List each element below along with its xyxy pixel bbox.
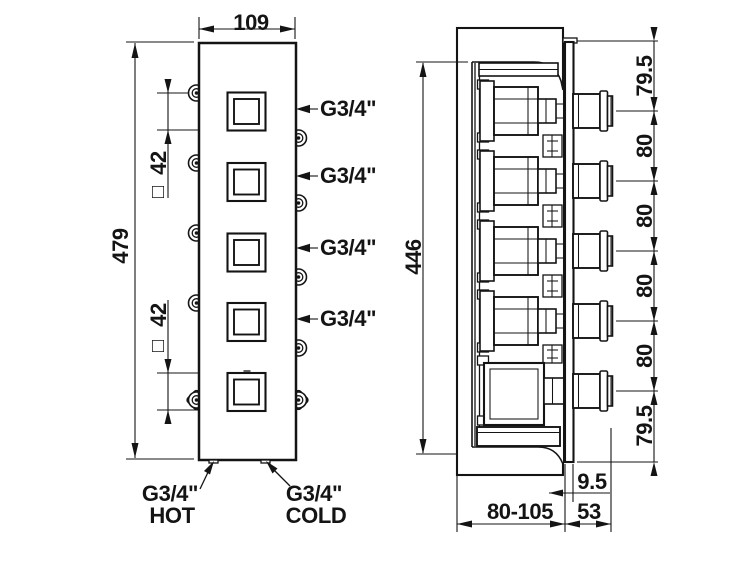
check-valve: [543, 135, 562, 157]
control-button: [228, 234, 266, 272]
side-height-label: 446: [401, 239, 426, 275]
front-height-label: 479: [108, 228, 133, 264]
plate-gap-label: 9.5: [577, 469, 607, 494]
spacing-label-3: 80: [632, 204, 657, 228]
control-button: [228, 371, 266, 411]
side-view: 446 79.5 80 80 80 80 79.5: [401, 27, 658, 532]
square-dim-bottom-label: 42: [146, 303, 171, 327]
front-view: 109 479 42 □ 42 □: [108, 10, 376, 528]
depth-range-label: 80-105: [487, 499, 553, 524]
front-height-dimension: 479: [108, 42, 194, 459]
hot-inlet-label: G3/4" HOT: [142, 461, 214, 528]
outlet-port: [573, 91, 613, 131]
control-button: [228, 93, 266, 131]
outlet-label-3: G3/4": [320, 235, 376, 260]
outlet-label-1: G3/4": [320, 96, 376, 121]
square-dim-top-label: 42: [146, 151, 171, 175]
cold-label: COLD: [286, 503, 347, 528]
square-symbol-top: □: [152, 181, 164, 203]
protrusion-label: 53: [577, 499, 601, 524]
front-width-label: 109: [233, 10, 269, 35]
control-button: [228, 303, 266, 341]
outlet-label-4: G3/4": [320, 306, 376, 331]
spacing-label-2: 80: [632, 134, 657, 158]
outlet-leaders: G3/4" G3/4" G3/4" G3/4": [296, 96, 376, 331]
control-button: [228, 163, 266, 201]
outlet-label-2: G3/4": [320, 163, 376, 188]
check-valve: [543, 205, 562, 227]
cold-inlet-label: G3/4" COLD: [266, 461, 346, 528]
outlet-port: [573, 231, 613, 271]
spacing-label-1: 79.5: [632, 55, 657, 96]
outlet-port: [573, 161, 613, 201]
valve-mechanism: [475, 63, 565, 446]
outlet-port: [573, 301, 613, 341]
spacing-label-4: 80: [632, 274, 657, 298]
spacing-label-5: 80: [632, 344, 657, 368]
outlet-port: [573, 371, 613, 411]
front-width-dimension: 109: [199, 10, 295, 39]
square-symbol-bottom: □: [152, 335, 164, 357]
check-valve: [543, 275, 562, 297]
hot-label: HOT: [149, 503, 195, 528]
drawing-canvas: 109 479 42 □ 42 □: [0, 0, 750, 563]
outlet-ports: [573, 91, 613, 411]
check-valve: [543, 345, 562, 363]
technical-drawing-page: 109 479 42 □ 42 □: [0, 0, 750, 563]
spacing-label-6: 79.5: [632, 405, 657, 446]
plate-gap-dimension: 9.5: [549, 464, 610, 502]
